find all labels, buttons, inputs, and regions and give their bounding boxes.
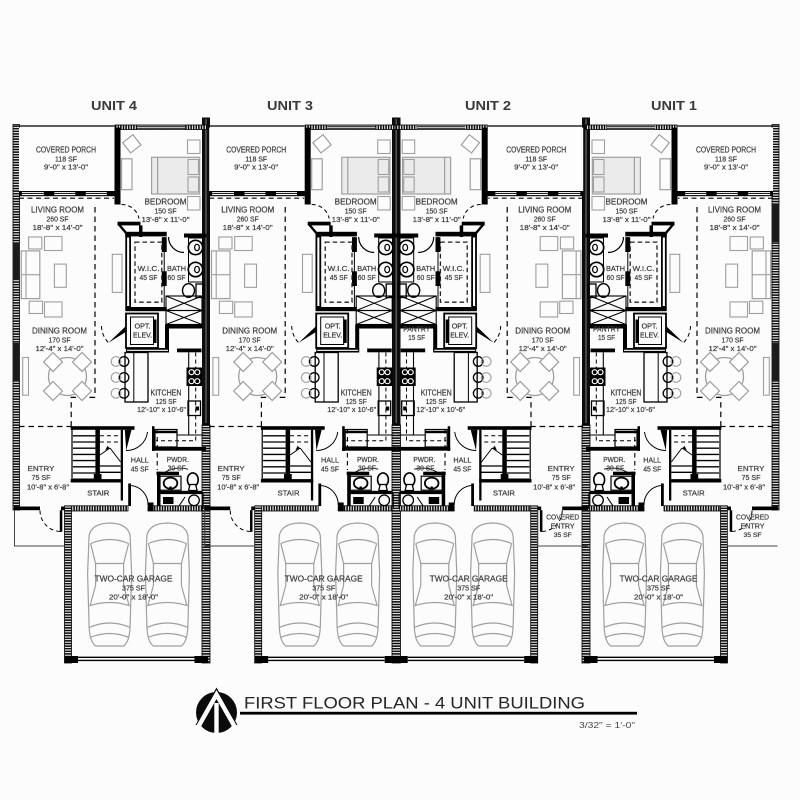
svg-text:LIVING ROOM: LIVING ROOM [31,206,84,215]
svg-text:DINING ROOM: DINING ROOM [515,327,570,336]
svg-text:13'-8" x 11'-0": 13'-8" x 11'-0" [332,215,380,224]
svg-text:10'-8" x 6'-8": 10'-8" x 6'-8" [217,483,259,492]
svg-text:STAIR: STAIR [87,489,109,498]
svg-text:STAIR: STAIR [493,489,515,498]
svg-text:9'-0" x 13'-0": 9'-0" x 13'-0" [234,163,278,172]
svg-text:35 SF: 35 SF [744,532,762,539]
svg-text:ELEV.: ELEV. [133,331,152,340]
svg-text:13'-8" x 11'-0": 13'-8" x 11'-0" [142,215,190,224]
svg-text:20'-0" x 18'-0": 20'-0" x 18'-0" [109,593,158,602]
svg-text:9'-0" x 13'-0": 9'-0" x 13'-0" [704,163,748,172]
svg-text:W.I.C.: W.I.C. [443,264,465,273]
svg-text:18'-8" x 14'-0": 18'-8" x 14'-0" [710,223,760,232]
svg-text:15 SF: 15 SF [598,335,615,342]
svg-text:12'-10" x 10'-6": 12'-10" x 10'-6" [416,405,465,414]
svg-text:UNIT 2: UNIT 2 [465,98,511,113]
svg-text:ENTRY: ENTRY [548,464,575,473]
svg-text:ENTRY: ENTRY [28,464,55,473]
svg-text:OPT.: OPT. [325,322,341,331]
svg-text:10'-8" x 6'-8": 10'-8" x 6'-8" [27,483,69,492]
svg-text:UNIT 1: UNIT 1 [651,98,697,113]
svg-text:45 SF: 45 SF [453,465,471,474]
svg-text:W.I.C.: W.I.C. [633,264,655,273]
svg-text:HALL: HALL [131,456,149,465]
svg-text:75 SF: 75 SF [742,473,761,482]
svg-text:PWDR.: PWDR. [603,455,625,464]
svg-text:45 SF: 45 SF [140,273,158,282]
svg-text:TWO-CAR GARAGE: TWO-CAR GARAGE [620,575,699,584]
svg-text:18'-8" x 14'-0": 18'-8" x 14'-0" [520,223,570,232]
svg-text:TWO-CAR GARAGE: TWO-CAR GARAGE [95,575,174,584]
svg-text:30 SF: 30 SF [168,466,186,473]
svg-text:LIVING ROOM: LIVING ROOM [708,206,761,215]
svg-text:ENTRY: ENTRY [218,464,245,473]
svg-text:30 SF: 30 SF [416,466,434,473]
svg-text:12'-4" x 14'-0": 12'-4" x 14'-0" [709,344,757,353]
svg-text:12'-4" x 14'-0": 12'-4" x 14'-0" [36,344,84,353]
svg-text:FIRST FLOOR PLAN - 4 UNIT BUIL: FIRST FLOOR PLAN - 4 UNIT BUILDING [244,694,585,713]
svg-text:30 SF: 30 SF [358,466,376,473]
svg-text:HALL: HALL [321,456,339,465]
svg-text:45 SF: 45 SF [131,465,149,474]
svg-text:20'-0" x 18'-0": 20'-0" x 18'-0" [634,593,683,602]
svg-text:12'-4" x 14'-0": 12'-4" x 14'-0" [226,344,274,353]
svg-text:COVERED PORCH: COVERED PORCH [226,146,286,155]
svg-text:BATH: BATH [416,264,435,273]
svg-text:COVERED: COVERED [546,515,579,522]
svg-text:STAIR: STAIR [683,489,705,498]
svg-text:9'-0" x 13'-0": 9'-0" x 13'-0" [514,163,558,172]
svg-text:ELEV.: ELEV. [323,331,342,340]
svg-text:OPT.: OPT. [642,322,658,331]
svg-text:75 SF: 75 SF [222,473,241,482]
svg-text:W.I.C.: W.I.C. [138,264,160,273]
svg-text:13'-8" x 11'-0": 13'-8" x 11'-0" [603,215,651,224]
svg-text:HALL: HALL [453,456,471,465]
svg-text:PANTRY: PANTRY [593,325,620,334]
svg-text:UNIT 4: UNIT 4 [91,98,138,113]
svg-text:20'-0" x 18'-0": 20'-0" x 18'-0" [299,593,348,602]
svg-text:BEDROOM: BEDROOM [335,198,377,207]
svg-text:60 SF: 60 SF [168,273,186,282]
svg-text:3/32" = 1'-0": 3/32" = 1'-0" [579,721,635,730]
svg-text:ELEV.: ELEV. [640,331,659,340]
svg-text:OPT.: OPT. [452,322,468,331]
svg-text:45 SF: 45 SF [643,465,661,474]
svg-text:DINING ROOM: DINING ROOM [32,327,87,336]
svg-text:10'-8" x 6'-8": 10'-8" x 6'-8" [723,483,765,492]
svg-text:W.I.C.: W.I.C. [328,264,350,273]
svg-text:35 SF: 35 SF [554,532,572,539]
svg-text:375 SF: 375 SF [312,584,335,593]
svg-text:BEDROOM: BEDROOM [145,198,187,207]
svg-text:375 SF: 375 SF [122,584,145,593]
svg-text:BATH: BATH [357,264,376,273]
svg-text:TWO-CAR GARAGE: TWO-CAR GARAGE [430,575,509,584]
svg-text:60 SF: 60 SF [417,273,435,282]
svg-text:STAIR: STAIR [278,489,300,498]
svg-text:BATH: BATH [167,264,186,273]
svg-text:BEDROOM: BEDROOM [416,198,458,207]
svg-text:COVERED PORCH: COVERED PORCH [36,146,96,155]
svg-text:12'-10" x 10'-6": 12'-10" x 10'-6" [606,405,655,414]
svg-text:BEDROOM: BEDROOM [606,198,648,207]
svg-text:75 SF: 75 SF [32,473,51,482]
svg-text:COVERED PORCH: COVERED PORCH [506,146,566,155]
svg-text:ENTRY: ENTRY [741,524,765,531]
svg-text:45 SF: 45 SF [330,273,348,282]
svg-text:375 SF: 375 SF [457,584,480,593]
svg-text:PANTRY: PANTRY [403,325,430,334]
svg-text:9'-0" x 13'-0": 9'-0" x 13'-0" [44,163,88,172]
svg-text:75 SF: 75 SF [552,473,571,482]
svg-text:ELEV.: ELEV. [450,331,469,340]
svg-text:30 SF: 30 SF [606,466,624,473]
svg-text:45 SF: 45 SF [635,273,653,282]
svg-text:OPT.: OPT. [135,322,151,331]
svg-text:DINING ROOM: DINING ROOM [705,327,760,336]
svg-text:12'-4" x 14'-0": 12'-4" x 14'-0" [519,344,567,353]
svg-text:HALL: HALL [643,456,661,465]
svg-text:PWDR.: PWDR. [357,455,379,464]
svg-text:COVERED: COVERED [736,515,769,522]
svg-text:10'-8" x 6'-8": 10'-8" x 6'-8" [533,483,575,492]
svg-text:LIVING ROOM: LIVING ROOM [221,206,274,215]
svg-text:ENTRY: ENTRY [738,464,765,473]
svg-text:20'-0" x 18'-0": 20'-0" x 18'-0" [444,593,493,602]
svg-text:60 SF: 60 SF [358,273,376,282]
svg-text:45 SF: 45 SF [321,465,339,474]
svg-text:375 SF: 375 SF [647,584,670,593]
svg-text:45 SF: 45 SF [445,273,463,282]
svg-text:LIVING ROOM: LIVING ROOM [518,206,571,215]
svg-text:COVERED PORCH: COVERED PORCH [696,146,756,155]
svg-text:12'-10" x 10'-6": 12'-10" x 10'-6" [327,405,376,414]
svg-text:18'-8" x 14'-0": 18'-8" x 14'-0" [223,223,273,232]
svg-text:BATH: BATH [606,264,625,273]
svg-text:13'-8" x 11'-0": 13'-8" x 11'-0" [413,215,461,224]
svg-text:12'-10" x 10'-6": 12'-10" x 10'-6" [137,405,186,414]
svg-text:PWDR.: PWDR. [413,455,435,464]
svg-text:18'-8" x 14'-0": 18'-8" x 14'-0" [33,223,83,232]
svg-text:UNIT 3: UNIT 3 [267,98,313,113]
svg-text:DINING ROOM: DINING ROOM [222,327,277,336]
svg-text:TWO-CAR GARAGE: TWO-CAR GARAGE [285,575,364,584]
svg-text:15 SF: 15 SF [408,335,425,342]
svg-text:ENTRY: ENTRY [551,524,575,531]
svg-text:PWDR.: PWDR. [167,455,189,464]
svg-text:60 SF: 60 SF [607,273,625,282]
